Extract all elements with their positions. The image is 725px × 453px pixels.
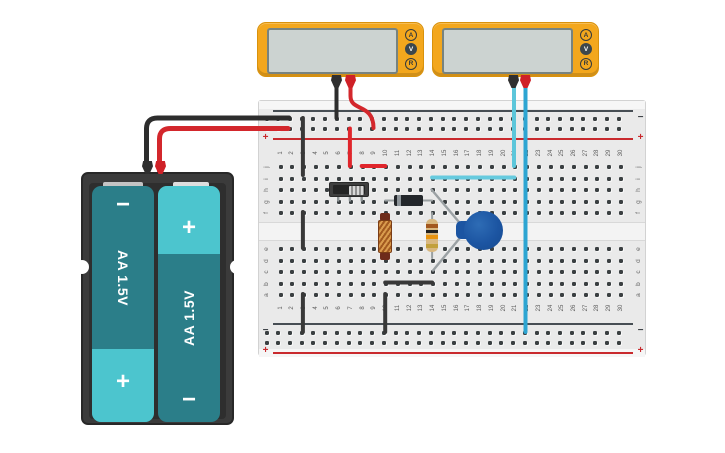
inductor[interactable] [378,213,392,260]
resistor-band [426,224,438,228]
resistor[interactable] [426,219,438,252]
multimeter-button-a[interactable]: A [405,29,417,41]
battery-2-label: AA 1.5V [181,290,197,346]
battery-1-top-terminal-symbol: − [92,192,154,218]
multimeter-button-v[interactable]: V [580,43,592,55]
pack-notch-left [75,260,89,274]
multimeter-1-screen [267,28,398,74]
multimeter-2-buttons: AVR [580,29,593,72]
multimeter-button-r[interactable]: R [580,58,592,70]
diode[interactable] [394,195,423,206]
slide-switch[interactable] [329,182,369,197]
resistor-band [426,244,438,248]
battery-1-label: AA 1.5V [115,250,131,306]
circuit-canvas: 1122334455667788991010111112121313141415… [0,0,725,453]
multimeter-1-buttons: AVR [405,29,418,72]
battery-1[interactable]: − + AA 1.5V [92,186,154,422]
inductor-coil [378,220,392,253]
inductor-cap-bottom [380,252,390,260]
resistor-band [426,230,438,234]
pack-notch-right [230,260,244,274]
mm1-positive-probe-wire[interactable] [351,84,374,128]
multimeter-2-screen [442,28,573,74]
multimeter-button-a[interactable]: A [580,29,592,41]
multimeter-2[interactable]: AVR [432,22,599,77]
multimeter-1[interactable]: AVR [257,22,424,77]
battery-1-bottom-terminal-symbol: + [92,369,154,395]
slide-switch-knob[interactable] [349,186,364,195]
battery-2-top-terminal-symbol: + [158,215,220,241]
capacitor[interactable] [464,211,503,250]
multimeter-button-r[interactable]: R [405,58,417,70]
battery-2[interactable]: + − AA 1.5V [158,186,220,422]
battery-pack[interactable]: − + AA 1.5V + − AA 1.5V [81,172,234,425]
resistor-band [426,235,438,239]
multimeter-button-v[interactable]: V [405,43,417,55]
battery-2-bottom-terminal-symbol: − [158,387,220,413]
battery-negative-wire[interactable] [147,118,290,168]
diode-cathode-band [397,195,401,206]
battery-positive-wire[interactable] [160,129,289,172]
